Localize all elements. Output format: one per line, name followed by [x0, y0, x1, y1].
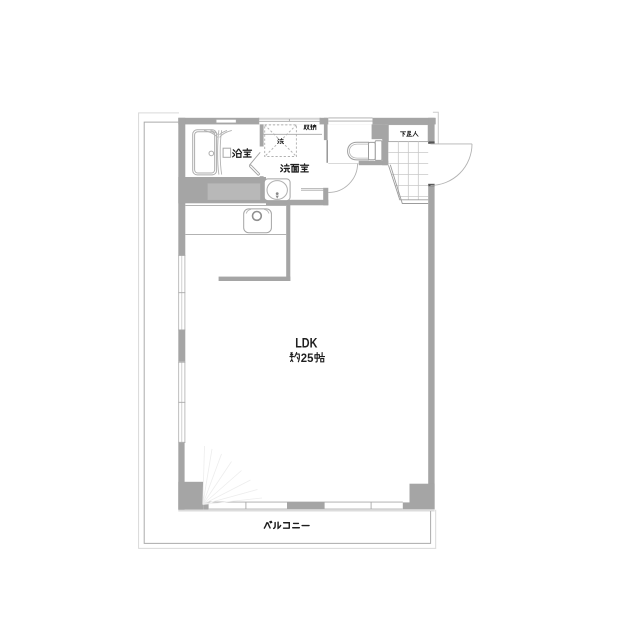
svg-text:25: 25	[301, 351, 314, 365]
svg-text:LDK: LDK	[295, 336, 317, 351]
